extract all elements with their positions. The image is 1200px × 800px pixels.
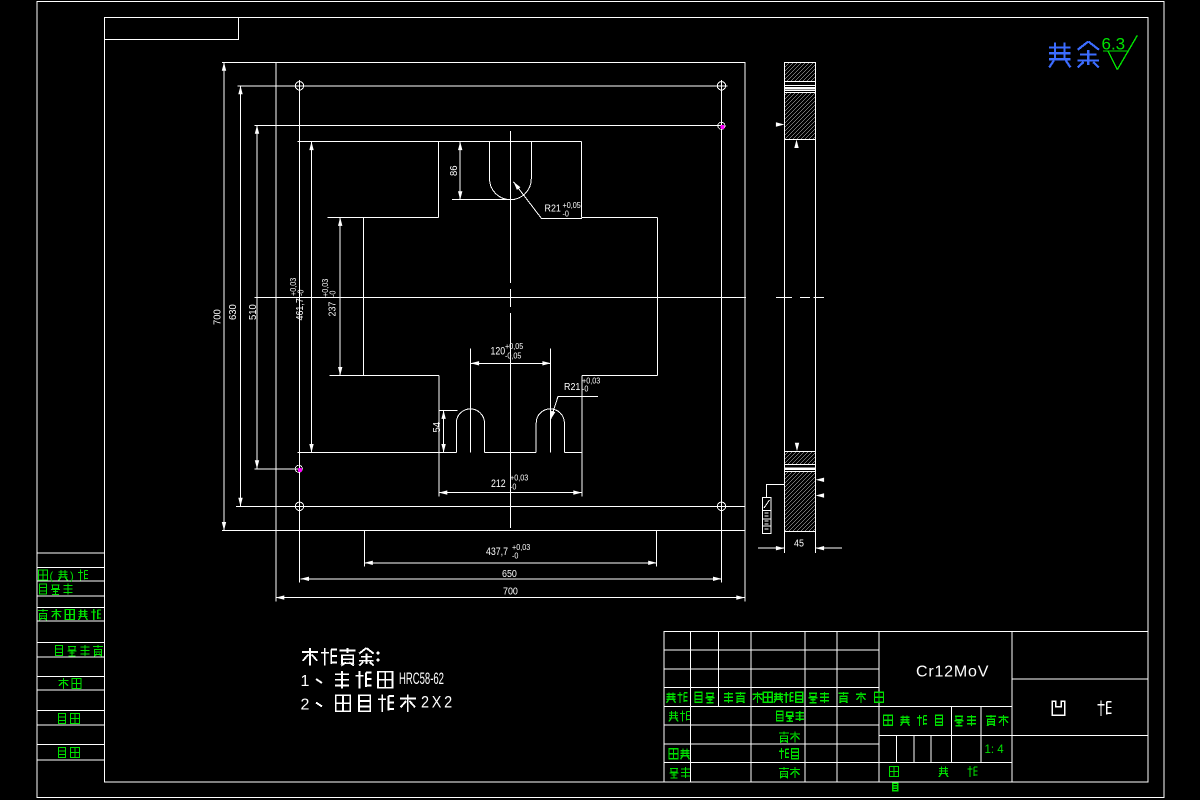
svg-text:-0: -0 (563, 209, 570, 219)
svg-text:-0: -0 (296, 289, 306, 296)
svg-text:Cr12MoV: Cr12MoV (916, 664, 989, 681)
svg-text:54: 54 (432, 422, 444, 433)
svg-text:700: 700 (212, 309, 224, 325)
svg-text:700: 700 (503, 586, 518, 598)
svg-text:): ) (70, 571, 74, 583)
svg-text:437,7: 437,7 (486, 546, 508, 558)
svg-text:-0: -0 (512, 551, 519, 561)
svg-text:650: 650 (502, 568, 517, 580)
svg-text:-0: -0 (510, 482, 517, 492)
svg-text:2: 2 (301, 697, 310, 714)
svg-text:510: 510 (248, 304, 260, 320)
svg-text:461,7: 461,7 (294, 298, 306, 320)
svg-text:-0: -0 (582, 384, 589, 394)
svg-text:1: 1 (301, 673, 310, 690)
svg-text:45: 45 (794, 538, 804, 550)
svg-text:-0,05: -0,05 (505, 351, 522, 361)
svg-text:212: 212 (491, 478, 506, 490)
svg-text:HRC58-62: HRC58-62 (399, 669, 444, 688)
svg-text:R21: R21 (545, 203, 561, 215)
svg-text:1: 4: 1: 4 (985, 744, 1005, 756)
svg-text:237: 237 (327, 302, 339, 317)
svg-text:R21: R21 (564, 381, 580, 393)
svg-text:(: ( (50, 571, 54, 583)
svg-text:86: 86 (449, 165, 461, 176)
svg-text:120: 120 (491, 346, 506, 358)
svg-text:+0,05: +0,05 (505, 341, 524, 351)
svg-text:-0: -0 (328, 290, 338, 297)
svg-text:2X2: 2X2 (421, 693, 455, 711)
svg-text:630: 630 (228, 304, 240, 320)
